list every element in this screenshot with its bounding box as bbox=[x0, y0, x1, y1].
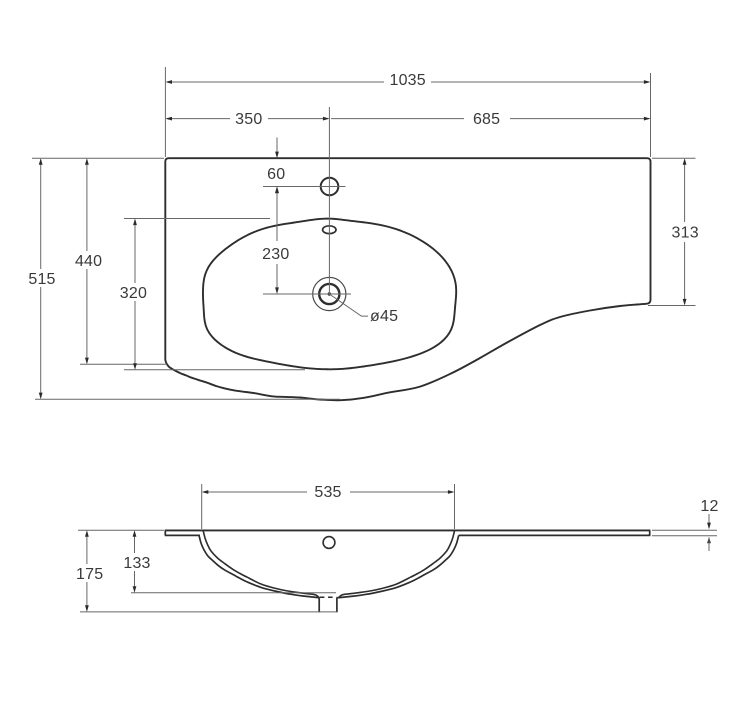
svg-text:230: 230 bbox=[262, 246, 289, 263]
svg-text:175: 175 bbox=[76, 566, 103, 583]
svg-text:685: 685 bbox=[473, 111, 500, 128]
svg-text:60: 60 bbox=[267, 166, 285, 183]
svg-text:350: 350 bbox=[235, 111, 262, 128]
svg-text:320: 320 bbox=[120, 285, 147, 302]
svg-text:515: 515 bbox=[28, 271, 55, 288]
svg-text:535: 535 bbox=[314, 484, 341, 501]
svg-text:12: 12 bbox=[700, 498, 718, 515]
svg-text:ø45: ø45 bbox=[370, 308, 398, 325]
svg-text:313: 313 bbox=[672, 225, 699, 242]
svg-text:1035: 1035 bbox=[389, 72, 425, 89]
svg-text:440: 440 bbox=[75, 253, 102, 270]
svg-text:133: 133 bbox=[123, 555, 150, 572]
